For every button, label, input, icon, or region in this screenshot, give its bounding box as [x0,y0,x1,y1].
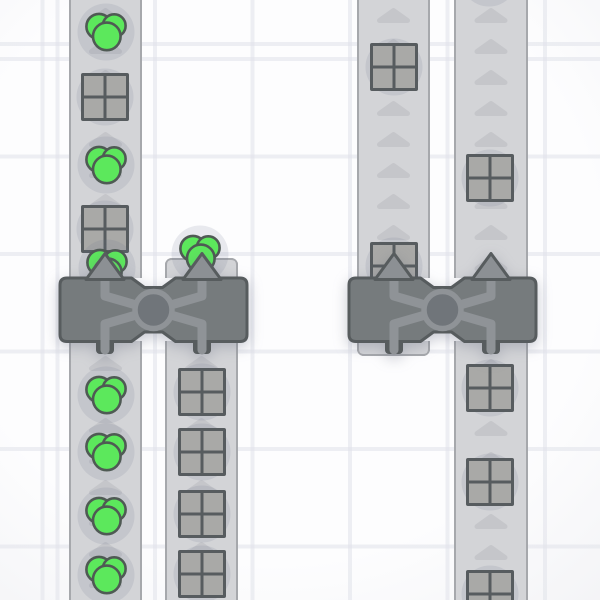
balancer-right[interactable] [337,246,548,377]
balancer-left[interactable] [48,246,259,377]
game-viewport[interactable] [0,0,600,600]
balancer-layer [0,0,600,600]
